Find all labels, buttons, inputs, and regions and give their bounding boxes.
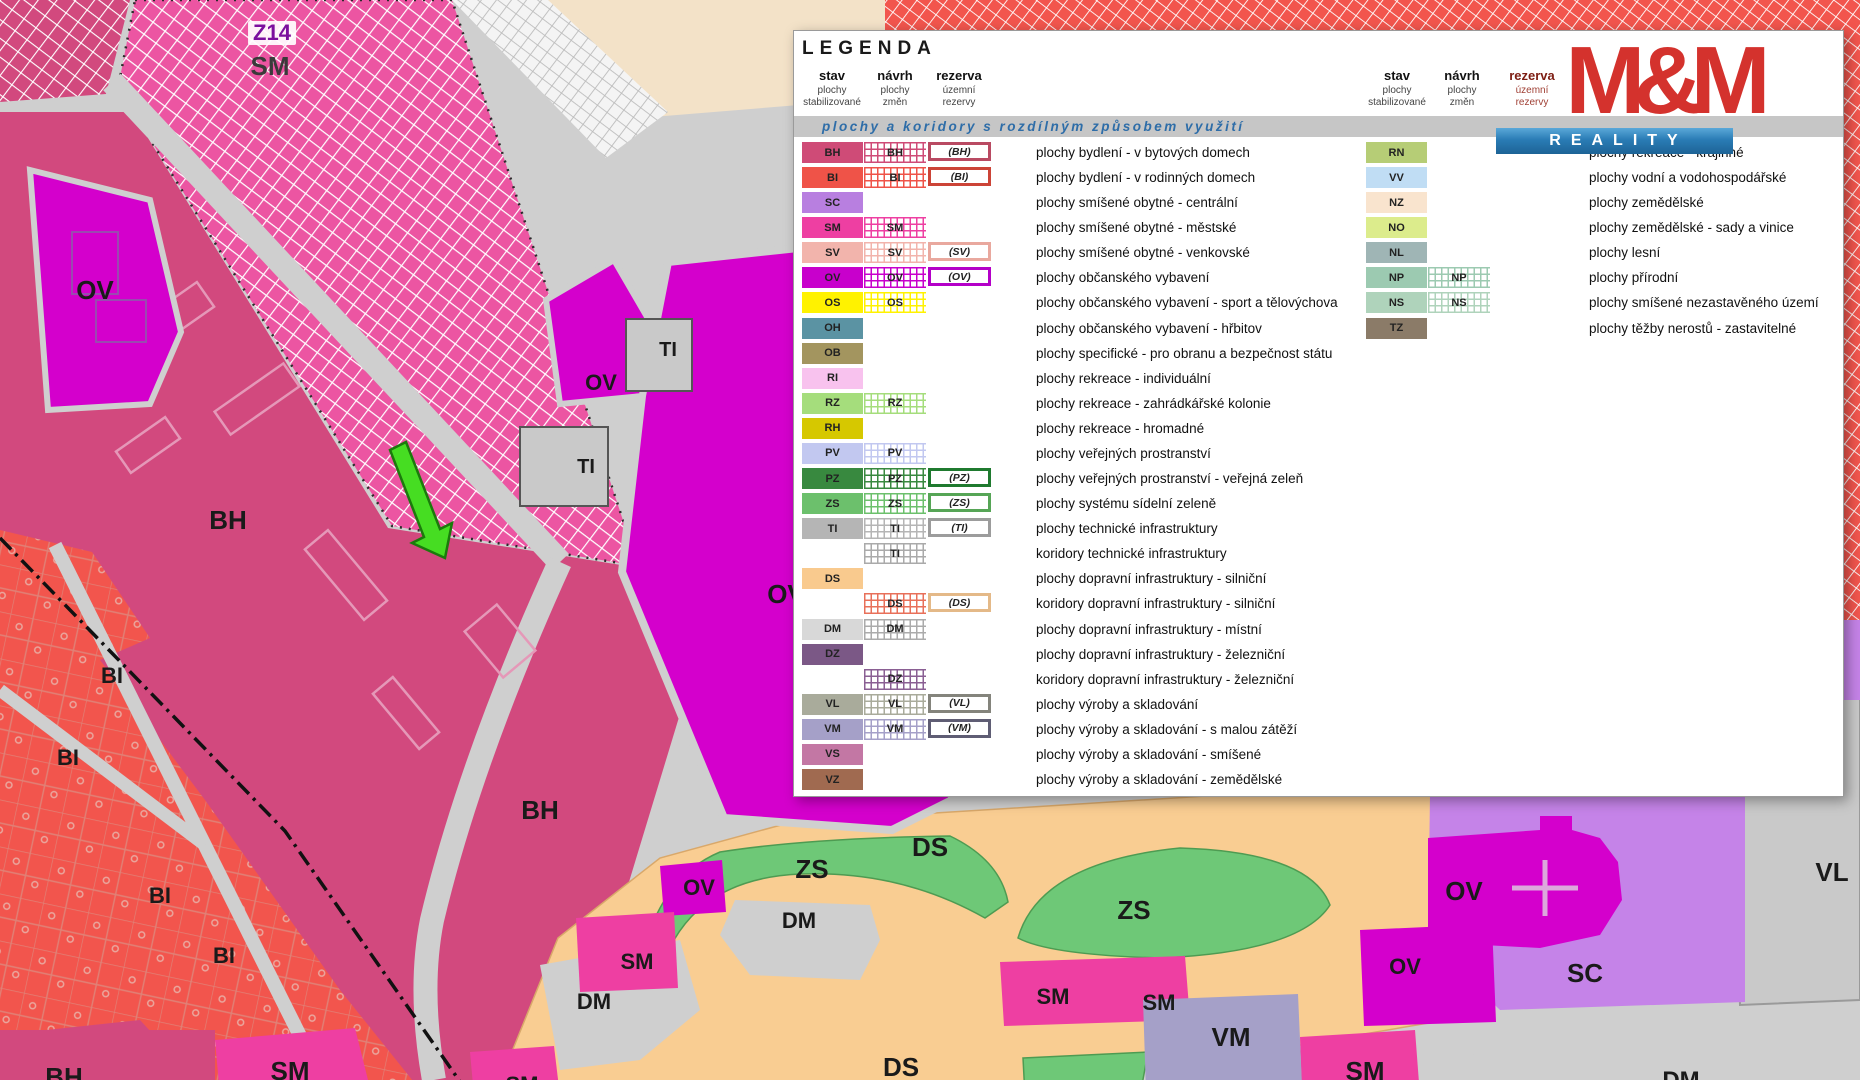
swatch-stav-oh: OH [802,318,863,339]
swatch-stav-vz: VZ [802,769,863,790]
swatch-stav-zs: ZS [802,493,863,514]
swatch-stav-dz: DZ [802,644,863,665]
swatch-rezerva-vm: (VM) [928,719,991,738]
swatch-navrh-vl: VL [864,694,926,715]
legend-row-label: plochy smíšené obytné - venkovské [1036,245,1250,260]
sliver-red-hatch [1842,30,1860,620]
swatch-rezerva-sv: (SV) [928,242,991,261]
swatch-stav-ti: TI [802,518,863,539]
legend-row-label: plochy bydlení - v rodinných domech [1036,170,1255,185]
legend-section-title: plochy a koridory s rozdílným způsobem v… [822,119,1245,134]
swatch-stav-vl: VL [802,694,863,715]
area-sm-5 [470,1046,560,1080]
area-sm-4 [1300,1030,1420,1080]
legend-row-label: plochy výroby a skladování [1036,697,1198,712]
legend-row-label: plochy rekreace - individuální [1036,371,1211,386]
legend-row-label: plochy občanského vybavení - hřbitov [1036,321,1262,336]
area-ov-3 [1360,924,1496,1026]
swatch-navrh-ds: DS [864,593,926,614]
legend-rows-left: BHBH(BH)plochy bydlení - v bytových dome… [802,31,1372,796]
swatch-navrh-dm: DM [864,619,926,640]
swatch-navrh-ti: TI [864,518,926,539]
legend-row-label: koridory technické infrastruktury [1036,546,1227,561]
column-header-rezerva-right: rezerva územní rezervy [1497,67,1567,108]
legend-row-label: plochy veřejných prostranství - veřejná … [1036,471,1303,486]
legend-row-label: plochy technické infrastruktury [1036,521,1218,536]
swatch-stav-sc: SC [802,192,863,213]
swatch-navrh-dz: DZ [864,669,926,690]
swatch-stav-ri: RI [802,368,863,389]
legend-row-label: plochy zemědělské - sady a vinice [1589,220,1794,235]
legend-row-label: plochy rekreace - zahrádkářské kolonie [1036,396,1271,411]
swatch-navrh-zs: ZS [864,493,926,514]
swatch-stav-no: NO [1366,217,1427,238]
legend-row-label: plochy rekreace - hromadné [1036,421,1204,436]
area-ov-small [660,860,726,916]
swatch-rezerva-zs: (ZS) [928,493,991,512]
swatch-stav-os: OS [802,292,863,313]
area-sm-b [576,912,678,992]
swatch-rezerva-pz: (PZ) [928,468,991,487]
swatch-stav-nz: NZ [1366,192,1427,213]
area-ti-1 [626,319,692,391]
legend-row-label: plochy vodní a vodohospodářské [1589,170,1786,185]
legend-panel: LEGENDA stav plochy stabilizované návrh … [793,30,1844,797]
swatch-navrh-sm: SM [864,217,926,238]
legend-row-label: plochy specifické - pro obranu a bezpečn… [1036,346,1332,361]
legend-row-label: plochy občanského vybavení [1036,270,1209,285]
swatch-stav-sm: SM [802,217,863,238]
swatch-stav-sv: SV [802,242,863,263]
swatch-navrh-bi: BI [864,167,926,188]
legend-row-label: plochy výroby a skladování - smíšené [1036,747,1261,762]
swatch-stav-vv: VV [1366,167,1427,188]
legend-row-label: plochy dopravní infrastruktury - místní [1036,622,1262,637]
legend-row-label: plochy smíšené obytné - centrální [1036,195,1238,210]
swatch-stav-bh: BH [802,142,863,163]
swatch-stav-vm: VM [802,719,863,740]
swatch-stav-tz: TZ [1366,318,1427,339]
area-bh-corner [0,1030,215,1080]
legend-row-label: plochy smíšené nezastavěného území [1589,295,1819,310]
area-ti-2 [520,427,608,506]
swatch-navrh-rz: RZ [864,393,926,414]
swatch-stav-pv: PV [802,443,863,464]
sliver-purple [1842,620,1860,700]
legend-row-label: plochy systému sídelní zeleně [1036,496,1216,511]
swatch-rezerva-ds: (DS) [928,593,991,612]
legend-row-label: plochy bydlení - v bytových domech [1036,145,1250,160]
legend-row-label: plochy lesní [1589,245,1660,260]
swatch-stav-ns: NS [1366,292,1427,313]
legend-row-label: plochy občanského vybavení - sport a těl… [1036,295,1338,310]
swatch-stav-ds: DS [802,568,863,589]
legend-row-label: koridory dopravní infrastruktury - želez… [1036,672,1294,687]
swatch-navrh-os: OS [864,292,926,313]
swatch-navrh-sv: SV [864,242,926,263]
swatch-navrh-ti: TI [864,543,926,564]
swatch-stav-bi: BI [802,167,863,188]
swatch-navrh-bh: BH [864,142,926,163]
legend-row-label: plochy dopravní infrastruktury - silničn… [1036,571,1266,586]
swatch-stav-rn: RN [1366,142,1427,163]
swatch-navrh-np: NP [1428,267,1490,288]
swatch-navrh-pv: PV [864,443,926,464]
swatch-rezerva-ov: (OV) [928,267,991,286]
legend-row-label: plochy veřejných prostranství [1036,446,1211,461]
swatch-navrh-ov: OV [864,267,926,288]
legend-row-label: plochy smíšené obytné - městské [1036,220,1236,235]
swatch-stav-rz: RZ [802,393,863,414]
swatch-stav-vs: VS [802,744,863,765]
swatch-rezerva-ti: (TI) [928,518,991,537]
legend-row-label: plochy výroby a skladování - s malou zát… [1036,722,1297,737]
legend-row-label: plochy zemědělské [1589,195,1704,210]
swatch-stav-rh: RH [802,418,863,439]
mm-reality-logo-subtitle: REALITY [1541,132,1687,150]
legend-row-label: plochy výroby a skladování - zemědělské [1036,772,1282,787]
swatch-navrh-pz: PZ [864,468,926,489]
mm-reality-logo-bar: REALITY [1496,128,1733,154]
swatch-stav-np: NP [1366,267,1427,288]
legend-row-label: plochy dopravní infrastruktury - železni… [1036,647,1285,662]
legend-row-label: koridory dopravní infrastruktury - silni… [1036,596,1275,611]
swatch-stav-ov: OV [802,267,863,288]
legend-row-label: plochy přírodní [1589,270,1678,285]
legend-row-label: plochy těžby nerostů - zastavitelné [1589,321,1796,336]
swatch-stav-nl: NL [1366,242,1427,263]
swatch-rezerva-vl: (VL) [928,694,991,713]
area-red-hatch-top [885,0,1860,30]
swatch-navrh-vm: VM [864,719,926,740]
swatch-stav-dm: DM [802,619,863,640]
swatch-rezerva-bh: (BH) [928,142,991,161]
screenshot-stage: Z14SMOVOVTITIBHOVBIBIBIBIBHDSZSOVDMSMDMZ… [0,0,1860,1080]
area-vm [1143,994,1302,1080]
swatch-navrh-ns: NS [1428,292,1490,313]
swatch-stav-ob: OB [802,343,863,364]
swatch-rezerva-bi: (BI) [928,167,991,186]
swatch-stav-pz: PZ [802,468,863,489]
